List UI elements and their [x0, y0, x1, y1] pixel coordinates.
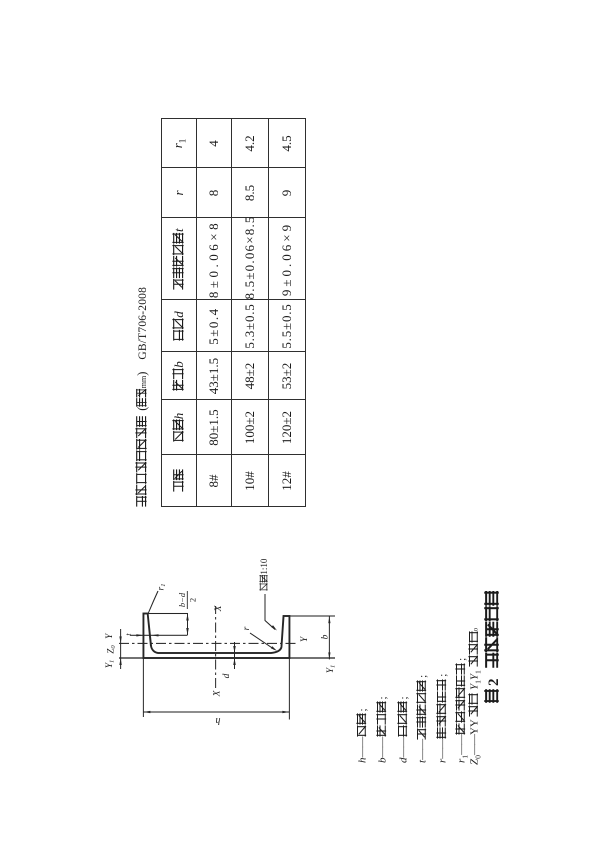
svg-text:2: 2: [188, 598, 198, 602]
svg-text:t: t: [124, 633, 133, 636]
svg-text:h: h: [216, 715, 221, 726]
svg-text:Y1: Y1: [105, 660, 116, 669]
svg-text:d: d: [222, 673, 232, 678]
svg-text:Y: Y: [300, 635, 310, 642]
svg-text:X: X: [214, 604, 224, 612]
svg-text:Y: Y: [105, 632, 115, 639]
svg-text:b−d: b−d: [177, 592, 187, 607]
svg-text:Y1: Y1: [326, 665, 337, 674]
svg-text:r1: r1: [157, 584, 168, 591]
svg-text:Z0: Z0: [106, 645, 118, 654]
svg-text:X: X: [213, 689, 223, 697]
svg-text:r: r: [242, 626, 252, 630]
svg-text:b: b: [321, 634, 331, 639]
